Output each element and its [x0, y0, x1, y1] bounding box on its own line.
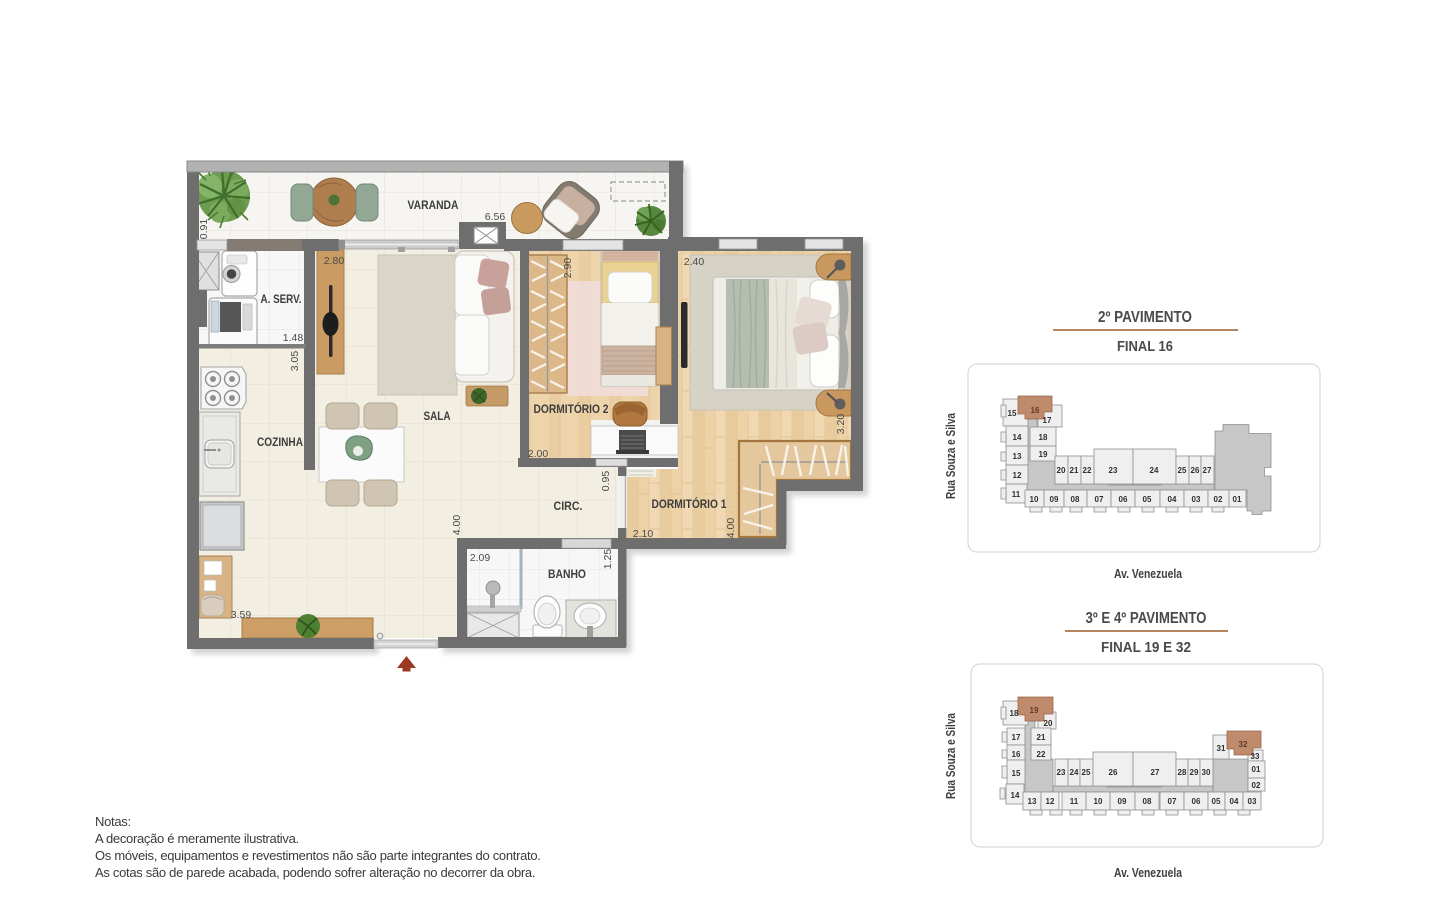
svg-text:06: 06	[1119, 495, 1128, 504]
svg-text:2º PAVIMENTO: 2º PAVIMENTO	[1098, 309, 1192, 326]
svg-text:01: 01	[1252, 765, 1261, 774]
svg-text:Rua Souza e Silva: Rua Souza e Silva	[944, 412, 958, 499]
svg-text:11: 11	[1070, 797, 1079, 806]
svg-text:05: 05	[1143, 495, 1152, 504]
svg-text:24: 24	[1070, 768, 1079, 777]
svg-text:25: 25	[1178, 466, 1187, 475]
svg-text:13: 13	[1028, 797, 1037, 806]
svg-text:1.25: 1.25	[602, 549, 614, 570]
svg-text:Os móveis, equipamentos e reve: Os móveis, equipamentos e revestimentos …	[95, 848, 541, 863]
svg-text:FINAL 16: FINAL 16	[1117, 339, 1173, 355]
svg-text:12: 12	[1046, 797, 1055, 806]
svg-text:2.09: 2.09	[470, 552, 491, 564]
svg-text:24: 24	[1150, 466, 1159, 475]
svg-text:COZINHA: COZINHA	[257, 437, 303, 449]
svg-text:27: 27	[1203, 466, 1212, 475]
svg-text:18: 18	[1039, 433, 1048, 442]
svg-text:DORMITÓRIO 2: DORMITÓRIO 2	[534, 403, 609, 416]
svg-text:1.48: 1.48	[283, 332, 304, 344]
svg-text:31: 31	[1217, 744, 1226, 753]
svg-text:Av. Venezuela: Av. Venezuela	[1114, 866, 1183, 880]
svg-text:20: 20	[1044, 719, 1053, 728]
svg-text:22: 22	[1037, 750, 1046, 759]
svg-text:25: 25	[1082, 768, 1091, 777]
svg-text:08: 08	[1071, 495, 1080, 504]
svg-text:01: 01	[1233, 495, 1242, 504]
svg-text:26: 26	[1191, 466, 1200, 475]
svg-text:27: 27	[1151, 768, 1160, 777]
svg-text:28: 28	[1178, 768, 1187, 777]
svg-text:15: 15	[1008, 409, 1017, 418]
svg-text:06: 06	[1192, 797, 1201, 806]
svg-text:3.20: 3.20	[835, 414, 847, 435]
svg-text:21: 21	[1037, 733, 1046, 742]
svg-text:21: 21	[1070, 466, 1079, 475]
svg-text:19: 19	[1039, 450, 1048, 459]
svg-text:07: 07	[1095, 495, 1104, 504]
svg-text:09: 09	[1050, 495, 1059, 504]
svg-text:14: 14	[1013, 433, 1022, 442]
svg-text:30: 30	[1202, 768, 1211, 777]
svg-text:4.00: 4.00	[451, 515, 463, 536]
svg-text:03: 03	[1248, 797, 1257, 806]
svg-text:2.40: 2.40	[684, 256, 705, 268]
svg-text:0.91: 0.91	[198, 219, 210, 240]
svg-text:Notas:: Notas:	[95, 814, 131, 829]
svg-text:BANHO: BANHO	[548, 569, 586, 581]
svg-text:26: 26	[1109, 768, 1118, 777]
svg-text:04: 04	[1230, 797, 1239, 806]
svg-text:4.00: 4.00	[725, 518, 737, 539]
svg-text:SALA: SALA	[424, 411, 451, 423]
svg-text:DORMITÓRIO 1: DORMITÓRIO 1	[652, 498, 728, 511]
svg-text:17: 17	[1012, 733, 1021, 742]
svg-text:17: 17	[1043, 416, 1052, 425]
svg-text:3.59: 3.59	[231, 609, 252, 621]
svg-text:0.95: 0.95	[600, 471, 612, 492]
svg-text:32: 32	[1239, 740, 1248, 749]
svg-text:09: 09	[1118, 797, 1127, 806]
svg-text:14: 14	[1011, 791, 1020, 800]
svg-text:11: 11	[1012, 490, 1021, 499]
svg-text:13: 13	[1013, 452, 1022, 461]
svg-text:22: 22	[1083, 466, 1092, 475]
svg-text:08: 08	[1143, 797, 1152, 806]
svg-text:15: 15	[1012, 769, 1021, 778]
svg-text:2.90: 2.90	[562, 258, 574, 279]
svg-text:29: 29	[1190, 768, 1199, 777]
svg-text:2.80: 2.80	[324, 255, 345, 267]
svg-text:03: 03	[1192, 495, 1201, 504]
svg-text:05: 05	[1212, 797, 1221, 806]
svg-text:Rua Souza e Silva: Rua Souza e Silva	[944, 712, 958, 799]
svg-text:33: 33	[1251, 752, 1260, 761]
svg-text:23: 23	[1109, 466, 1118, 475]
svg-text:02: 02	[1252, 781, 1261, 790]
svg-text:2.00: 2.00	[528, 448, 549, 460]
svg-text:As cotas são de parede acabada: As cotas são de parede acabada, podendo …	[95, 865, 535, 880]
svg-text:VARANDA: VARANDA	[408, 200, 459, 212]
svg-text:FINAL 19 E 32: FINAL 19 E 32	[1101, 640, 1191, 656]
svg-text:07: 07	[1168, 797, 1177, 806]
svg-text:Av. Venezuela: Av. Venezuela	[1114, 567, 1183, 581]
svg-text:20: 20	[1057, 466, 1066, 475]
svg-text:19: 19	[1030, 706, 1039, 715]
svg-text:10: 10	[1030, 495, 1039, 504]
svg-text:A decoração é meramente ilustr: A decoração é meramente ilustrativa.	[95, 831, 299, 846]
svg-text:12: 12	[1013, 471, 1022, 480]
svg-text:A. SERV.: A. SERV.	[261, 294, 302, 306]
svg-text:CIRC.: CIRC.	[554, 501, 583, 513]
svg-text:02: 02	[1214, 495, 1223, 504]
svg-text:3º E 4º PAVIMENTO: 3º E 4º PAVIMENTO	[1086, 610, 1207, 627]
svg-text:04: 04	[1168, 495, 1177, 504]
svg-text:3.05: 3.05	[289, 351, 301, 372]
svg-text:10: 10	[1094, 797, 1103, 806]
svg-text:6.56: 6.56	[485, 211, 506, 223]
svg-text:18: 18	[1010, 709, 1019, 718]
svg-text:2.10: 2.10	[633, 528, 654, 540]
svg-text:16: 16	[1012, 750, 1021, 759]
svg-text:23: 23	[1057, 768, 1066, 777]
svg-text:16: 16	[1031, 406, 1040, 415]
